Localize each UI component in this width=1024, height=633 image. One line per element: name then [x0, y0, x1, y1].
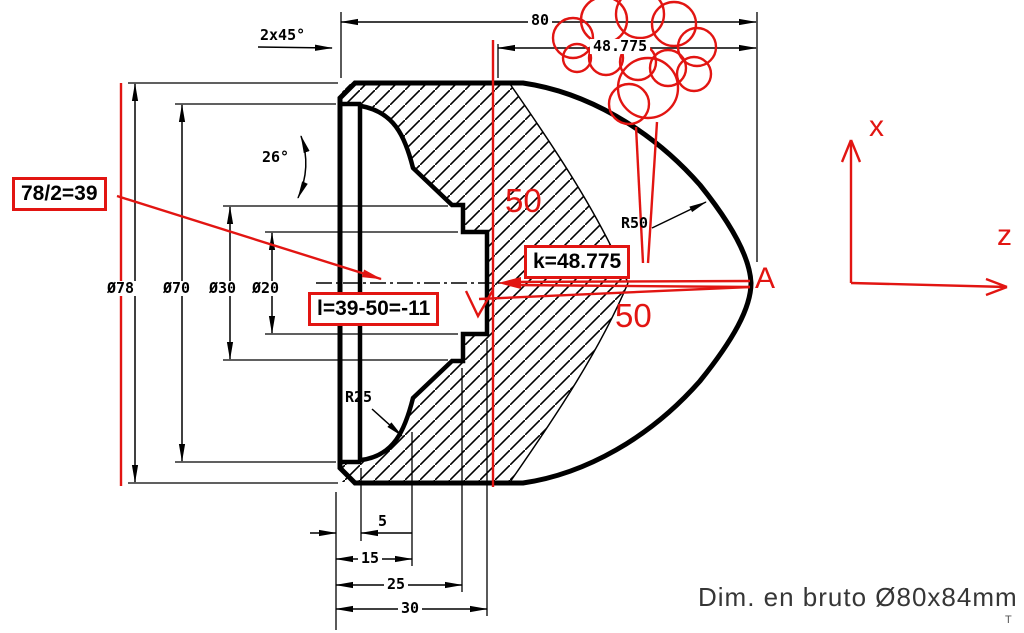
cloud-leader	[636, 127, 643, 263]
engineering-drawing-page: 80 48.775 2x45° 26° Ø78 Ø70 Ø30 Ø20 R25 …	[0, 0, 1024, 633]
dim-diameter-30: Ø30	[206, 281, 239, 296]
label-axis-z: z	[997, 221, 1012, 251]
stock-dimension-note: Dim. en bruto Ø80x84mm	[698, 584, 1018, 610]
dim-diameter-20: Ø20	[249, 281, 282, 296]
dim-depth-25: 25	[384, 577, 408, 592]
z-axis-line	[851, 283, 1007, 287]
dim-radius-25: R25	[345, 390, 372, 405]
dim-radius-50: R50	[621, 216, 648, 231]
corner-mark: T	[1005, 615, 1012, 626]
callout-k-value: k=48.775	[524, 245, 630, 279]
dim-depth-30: 30	[398, 601, 422, 616]
dim-cone-angle: 26°	[262, 150, 289, 165]
label-point-a: A	[755, 264, 775, 294]
dim-chamfer: 2x45°	[260, 28, 305, 43]
label-offset-upper: 50	[505, 184, 542, 217]
dim-depth-5: 5	[378, 514, 387, 529]
dim-diameter-70: Ø70	[160, 281, 193, 296]
red-leader-a-horizontal	[509, 281, 750, 282]
label-axis-x: x	[869, 112, 884, 142]
callout-half-diameter: 78/2=39	[12, 177, 107, 211]
dim-diameter-78: Ø78	[104, 281, 137, 296]
dim-overall-length: 80	[528, 13, 552, 28]
callout-l-value: l=39-50=-11	[308, 292, 439, 326]
drawing-canvas	[0, 0, 1024, 633]
label-offset-lower: 50	[615, 299, 652, 332]
revision-cloud	[553, 0, 716, 124]
dim-depth-15: 15	[358, 551, 382, 566]
dim-k-length: 48.775	[590, 39, 650, 54]
